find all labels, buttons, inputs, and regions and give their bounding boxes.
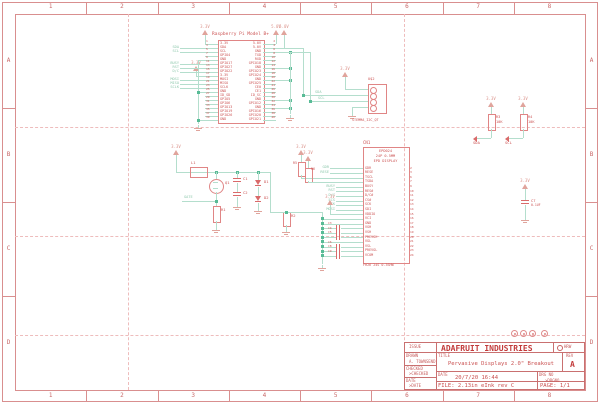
gnd-icon	[521, 220, 529, 221]
wire	[182, 201, 216, 202]
wire	[308, 182, 352, 183]
gnd-icon	[233, 207, 241, 208]
supply-label: 3.3V	[514, 96, 532, 101]
frame-column-label: 7	[443, 4, 514, 10]
wire	[322, 256, 336, 257]
frame-row-label: B	[4, 152, 13, 158]
pin-number: 20	[410, 236, 414, 239]
qt-bottom-label: STEMMA_I2C_QT	[352, 119, 379, 122]
supply-label: 5.0V	[275, 24, 293, 29]
mounting-hole-icon	[541, 330, 548, 337]
frame-column-label: 1	[15, 393, 86, 399]
frame-tick	[300, 2, 301, 14]
supply-label: 3.3V	[321, 194, 339, 199]
frame-column-label: 8	[514, 4, 585, 10]
wire	[276, 38, 277, 44]
frame-column-label: 3	[158, 4, 229, 10]
wire	[237, 183, 238, 192]
pin-number: 9	[410, 185, 412, 188]
pin-number: 22	[410, 245, 414, 248]
epd-pin-wire	[352, 214, 363, 215]
company-name: ADAFRUIT INDUSTRIES	[441, 344, 533, 353]
epd-pin-wire	[352, 247, 363, 248]
frame-row-label: D	[587, 340, 596, 346]
net-wire	[180, 52, 205, 53]
wire	[336, 205, 352, 206]
frame-column-label: 4	[229, 4, 300, 10]
wire	[341, 233, 352, 234]
junction	[215, 200, 218, 203]
frame-row-label: A	[4, 58, 13, 64]
net-wire	[180, 64, 205, 65]
junction	[197, 119, 200, 122]
frame-column-label: 5	[300, 4, 371, 10]
frame-tick	[585, 296, 598, 297]
junction	[321, 227, 324, 230]
frame-column-label: 8	[514, 393, 585, 399]
wire	[258, 172, 259, 180]
net-flag-label: SCL	[505, 141, 512, 145]
pin-number: 16	[410, 217, 414, 220]
pi-pin-name: GPIO21	[243, 118, 261, 121]
capacitor-icon	[233, 192, 241, 193]
resistor	[520, 114, 528, 131]
pin-number: 23	[410, 249, 414, 252]
epd-pin-name: VCI	[365, 217, 371, 220]
wire	[336, 191, 352, 192]
frame-tick	[443, 2, 444, 14]
zone-divider-horizontal-3	[15, 335, 585, 336]
pin-number: 39	[206, 116, 216, 119]
wire	[509, 138, 523, 139]
epd-pin-wire	[352, 178, 363, 179]
epd-pin-name: VSH	[365, 231, 371, 234]
drg-label: DRG NO	[539, 373, 553, 377]
wire	[310, 101, 368, 102]
component-label: 10K	[496, 121, 503, 125]
frame-tick	[514, 390, 515, 402]
qt-ref: U$2	[368, 78, 375, 82]
wire	[310, 52, 311, 101]
frame-row-label: D	[4, 340, 13, 346]
supply-label: 3.3V	[482, 96, 500, 101]
wire	[205, 38, 206, 44]
epd-header-line: EPD DISPLAY	[367, 160, 404, 164]
gnd-icon	[318, 268, 326, 269]
epd-pin-wire	[352, 210, 363, 211]
junction	[285, 211, 288, 214]
gnd-icon	[254, 211, 262, 212]
frame-tick	[229, 2, 230, 14]
gnd-icon	[256, 213, 260, 214]
cap-ref: C9	[328, 250, 332, 253]
pi-net-label: SCLK	[160, 86, 179, 90]
mounting-hole-icon	[520, 330, 527, 337]
frame-row-label: C	[4, 246, 13, 252]
frame-tick	[443, 390, 444, 402]
component-label: R5	[293, 162, 297, 165]
gnd-icon	[235, 209, 239, 210]
supply-label: 3.3V	[167, 144, 185, 149]
checked-value: >CHECKED	[409, 372, 428, 376]
component-label: C2	[243, 191, 248, 195]
logo-text: HRW	[564, 345, 571, 349]
qt-net-label: SDA	[315, 91, 322, 95]
epd-pin-wire	[352, 173, 363, 174]
issue-label: ISSUE	[409, 345, 421, 349]
junction	[321, 245, 324, 248]
component-label: C1	[243, 177, 248, 181]
gnd-icon	[348, 116, 356, 117]
epd-pin-wire	[352, 228, 363, 229]
wire	[336, 201, 352, 202]
title-label: TITLE	[438, 354, 450, 358]
frame-column-label: 5	[300, 393, 371, 399]
epd-pin-wire	[352, 219, 363, 220]
resistor	[488, 114, 496, 131]
component-label: R2	[291, 214, 296, 218]
qt-pin-circle	[370, 105, 377, 112]
frame-row-label: B	[587, 152, 596, 158]
junction	[321, 231, 324, 234]
wire	[341, 237, 352, 238]
cap-ref: C3	[328, 222, 332, 225]
gnd-icon	[194, 128, 202, 129]
epd-pin-wire	[352, 191, 363, 192]
wire	[491, 129, 492, 138]
cap-ref: C8	[328, 245, 332, 248]
supply-label: 3.3V	[336, 66, 354, 71]
wire	[525, 192, 526, 200]
wire	[341, 256, 352, 257]
epd-part-number: FH26 24S 0.3SHW	[363, 264, 394, 267]
frame-tick	[158, 390, 159, 402]
component-label: R6	[311, 168, 315, 171]
net-flag-label: SDA	[473, 141, 480, 145]
frame-tick	[585, 202, 598, 203]
net-wire	[180, 68, 205, 69]
qt-net-label: SCL	[318, 97, 325, 101]
cap-ref: C6	[328, 241, 332, 244]
junction	[309, 100, 312, 103]
wire	[284, 38, 285, 48]
epd-pin-wire	[352, 251, 363, 252]
frame-column-label: 7	[443, 393, 514, 399]
file-value: FILE: 2.13in eInk rev C	[438, 383, 514, 389]
component-label: L1	[191, 161, 196, 165]
zone-divider-horizontal-1	[15, 127, 585, 128]
wire	[198, 60, 205, 61]
gnd-icon	[286, 118, 294, 119]
gnd-icon	[214, 232, 218, 233]
pin-number: 10	[410, 190, 414, 193]
wire	[330, 168, 352, 169]
net-wire	[180, 84, 205, 85]
rev-label: REV	[566, 354, 573, 358]
schematic-sheet: 1122334455667788AABBCCDD Raspberry Pi Mo…	[0, 0, 600, 404]
supply-label: 3.3V	[292, 144, 310, 149]
gnd-icon	[288, 120, 292, 121]
pin-number: 17	[410, 222, 414, 225]
pi-connector-title: Raspberry Pi Model B+	[204, 33, 277, 38]
drawn-value: A. TOWNSEND	[409, 360, 436, 364]
pin-number: 11	[410, 194, 414, 197]
gnd-icon	[212, 230, 220, 231]
wire	[341, 251, 352, 252]
wire	[290, 52, 291, 114]
date-value: >DATE	[409, 384, 421, 388]
inductor	[190, 167, 208, 178]
frame-tick	[2, 202, 15, 203]
wire	[303, 95, 368, 96]
pin-number: 15	[410, 213, 414, 216]
wire	[341, 228, 352, 229]
epd-pin-name: D/C#	[365, 194, 373, 197]
junction	[321, 236, 324, 239]
epd-pin-name: BUSY	[365, 185, 373, 188]
junction	[321, 222, 324, 225]
gnd-icon	[320, 270, 324, 271]
pin-number: 14	[410, 208, 414, 211]
cap-ref: C4	[328, 227, 332, 230]
pin-number: 3	[410, 171, 412, 174]
wire	[341, 247, 352, 248]
frame-column-label: 3	[158, 393, 229, 399]
mounting-hole-icon	[511, 330, 518, 337]
resistor	[213, 206, 221, 223]
frame-tick	[2, 108, 15, 109]
component-label: R1	[221, 208, 226, 212]
frame-column-label: 2	[86, 4, 157, 10]
pin-number: 19	[410, 231, 414, 234]
logo-icon	[557, 345, 563, 351]
pi-net-label: D/C	[160, 70, 179, 74]
pi-pin-wire	[205, 120, 218, 121]
pin-number: 18	[410, 226, 414, 229]
cap-ref: C5	[328, 231, 332, 234]
wire	[336, 210, 352, 211]
epd-pin-wire	[352, 187, 363, 188]
pin-number: 21	[410, 240, 414, 243]
wire	[276, 48, 303, 49]
pin-number: 6	[410, 176, 412, 179]
component-label: D2	[264, 196, 269, 200]
wire	[352, 107, 368, 108]
epd-pin-name: VGL	[365, 240, 371, 243]
junction	[321, 217, 324, 220]
frame-tick	[229, 390, 230, 402]
net-wire	[180, 72, 205, 73]
junction	[302, 94, 305, 97]
wire	[276, 52, 310, 53]
epd-pin-wire	[352, 168, 363, 169]
frame-tick	[514, 2, 515, 14]
wire	[345, 80, 346, 89]
zone-divider-vertical-1	[128, 14, 129, 390]
wire	[525, 205, 526, 217]
gnd-icon	[284, 234, 288, 235]
epd-pin-name: SDI	[365, 208, 371, 211]
frame-column-label: 4	[229, 393, 300, 399]
wire	[345, 89, 368, 90]
pi-pin-name: GND	[220, 118, 226, 121]
pin-number: 2	[410, 167, 412, 170]
junction	[321, 240, 324, 243]
diode-icon	[255, 185, 261, 186]
diode-icon	[255, 201, 261, 202]
epd-pin-wire	[352, 237, 363, 238]
frame-column-label: 6	[371, 393, 442, 399]
date2-label: DATE	[438, 373, 448, 377]
drawn-label: DRAWN	[406, 354, 418, 358]
gnd-icon	[523, 222, 527, 223]
supply-label: 3.3V	[516, 178, 534, 183]
capacitor-icon	[336, 253, 337, 259]
frame-column-label: 1	[15, 4, 86, 10]
frame-inner-top	[15, 14, 585, 15]
frame-tick	[585, 108, 598, 109]
wire	[213, 182, 218, 183]
title-value: Pervasive Displays 2.0" Breakout	[448, 361, 554, 367]
frame-tick	[86, 2, 87, 14]
frame-column-label: 6	[371, 4, 442, 10]
pin-number: 24	[410, 254, 414, 257]
epd-pin-name: RESE	[365, 171, 373, 174]
wire	[336, 187, 352, 188]
pin-number: 40	[265, 116, 275, 119]
pi-net-label: SCL	[160, 50, 179, 54]
net-label: RESE	[314, 171, 329, 175]
wire	[322, 237, 336, 238]
wire	[303, 48, 304, 95]
epd-ref: CN1	[363, 141, 370, 145]
wire	[477, 138, 491, 139]
capacitor-icon	[521, 200, 529, 201]
capacitor-icon	[336, 234, 337, 240]
junction	[321, 250, 324, 253]
frame-tick	[86, 390, 87, 402]
junction	[197, 91, 200, 94]
wire	[322, 219, 352, 220]
wire	[330, 173, 352, 174]
pin-number: 12	[410, 199, 414, 202]
epd-pin-wire	[352, 196, 363, 197]
date2-value: 20/7/20 16:44	[455, 375, 498, 381]
wire	[237, 197, 238, 204]
resistor	[283, 212, 291, 227]
frame-tick	[158, 2, 159, 14]
gate-net-label: GATE	[184, 196, 193, 200]
epd-pin-wire	[352, 233, 363, 234]
wire	[176, 158, 177, 172]
wire	[270, 212, 322, 213]
pin-number: 7	[410, 180, 412, 183]
net-wire	[180, 48, 205, 49]
epd-pin-wire	[352, 182, 363, 183]
epd-pin-wire	[352, 224, 363, 225]
component-label: 0.1UF	[531, 204, 541, 207]
gnd-icon	[196, 130, 200, 131]
frame-row-label: A	[587, 58, 596, 64]
frame-tick	[371, 390, 372, 402]
supply-label: 3.3V	[196, 24, 214, 29]
net-wire	[180, 88, 205, 89]
rev-value: A	[570, 360, 575, 369]
epd-pin-wire	[352, 205, 363, 206]
frame-row-label: C	[587, 246, 596, 252]
pi-pin-wire	[263, 120, 276, 121]
wire	[270, 172, 271, 212]
frame-tick	[371, 2, 372, 14]
mounting-hole-icon	[529, 330, 536, 337]
capacitor-icon	[233, 178, 241, 179]
junction	[321, 254, 324, 257]
wire	[330, 214, 352, 215]
supply-label: 3.3V	[299, 150, 317, 155]
epd-pin-name: VCOM	[365, 254, 373, 257]
frame-tick	[300, 390, 301, 402]
epd-pin-wire	[352, 201, 363, 202]
frame-tick	[2, 296, 15, 297]
zone-divider-horizontal-2	[15, 236, 585, 237]
gnd-icon	[282, 232, 290, 233]
net-wire	[180, 80, 205, 81]
component-label: Q1	[225, 181, 230, 185]
frame-column-label: 2	[86, 393, 157, 399]
component-label: D1	[264, 180, 269, 184]
component-label: 10K	[528, 121, 535, 125]
wire	[213, 188, 218, 189]
pin-number: 13	[410, 203, 414, 206]
wire	[258, 187, 259, 196]
wire	[523, 129, 524, 138]
epd-pin-wire	[352, 256, 363, 257]
net-label: MOSI	[318, 208, 335, 212]
epd-pin-wire	[352, 242, 363, 243]
page-value: PAGE: 1/1	[540, 383, 570, 389]
